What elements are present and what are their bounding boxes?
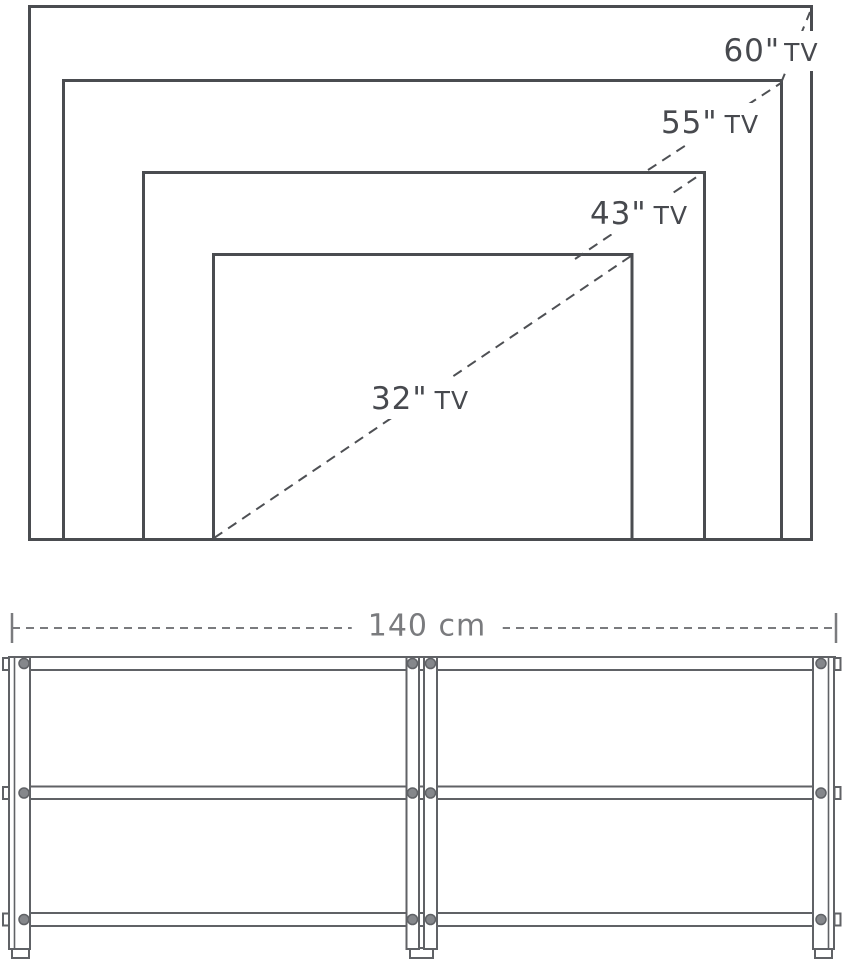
tv-43-size-text: 43" — [590, 196, 647, 232]
tv-label-55: 55" TV — [658, 103, 762, 143]
tv-60-device-text: TV — [784, 38, 818, 67]
screw-left-bottom — [19, 915, 29, 925]
screw-left-middle — [19, 788, 29, 798]
product-dimension-diagram: 60" TV 55" TV 43" TV 32" TV 140 cm — [0, 0, 843, 960]
middle-shelf — [30, 787, 813, 800]
right-top-tab — [835, 658, 841, 670]
screw-midright-top — [426, 659, 436, 669]
diagonal-dashed-lines — [214, 12, 810, 538]
left-leg — [9, 657, 30, 949]
tv-55-device-text: TV — [725, 110, 759, 139]
tv-32-device-text: TV — [435, 386, 469, 415]
screw-midright-bottom — [426, 915, 436, 925]
tv-55-rect — [64, 81, 782, 540]
stand-feet — [12, 948, 832, 958]
stand-width-label: 140 cm — [352, 607, 503, 646]
screw-midright-middle — [426, 788, 436, 798]
tv-60-size-text: 60" — [723, 33, 780, 69]
screw-midleft-bottom — [408, 915, 418, 925]
top-panel — [9, 657, 835, 670]
right-middle-tab — [835, 787, 841, 799]
right-leg — [813, 657, 834, 949]
diagram-svg — [0, 0, 843, 960]
tv-size-nested-rectangles — [30, 7, 812, 540]
screw-right-middle — [816, 788, 826, 798]
tv-label-32: 32" TV — [368, 379, 472, 419]
screw-midleft-middle — [408, 788, 418, 798]
bottom-shelf — [30, 913, 813, 926]
tv-32-size-text: 32" — [371, 381, 428, 417]
screw-right-bottom — [816, 915, 826, 925]
middle-right-post — [424, 657, 437, 949]
middle-left-post — [407, 657, 420, 949]
screw-left-top — [19, 659, 29, 669]
tv-label-43: 43" TV — [587, 194, 691, 234]
stand-shelves — [9, 657, 835, 926]
tv-stand-front-view — [3, 657, 841, 958]
screw-midleft-top — [408, 659, 418, 669]
screw-right-top — [816, 659, 826, 669]
tv-55-size-text: 55" — [661, 105, 718, 141]
tv-60-rect — [30, 7, 812, 540]
tv-label-60: 60" TV — [720, 31, 821, 71]
stand-legs — [9, 657, 834, 949]
tv-43-device-text: TV — [654, 201, 688, 230]
right-bottom-tab — [835, 914, 841, 926]
